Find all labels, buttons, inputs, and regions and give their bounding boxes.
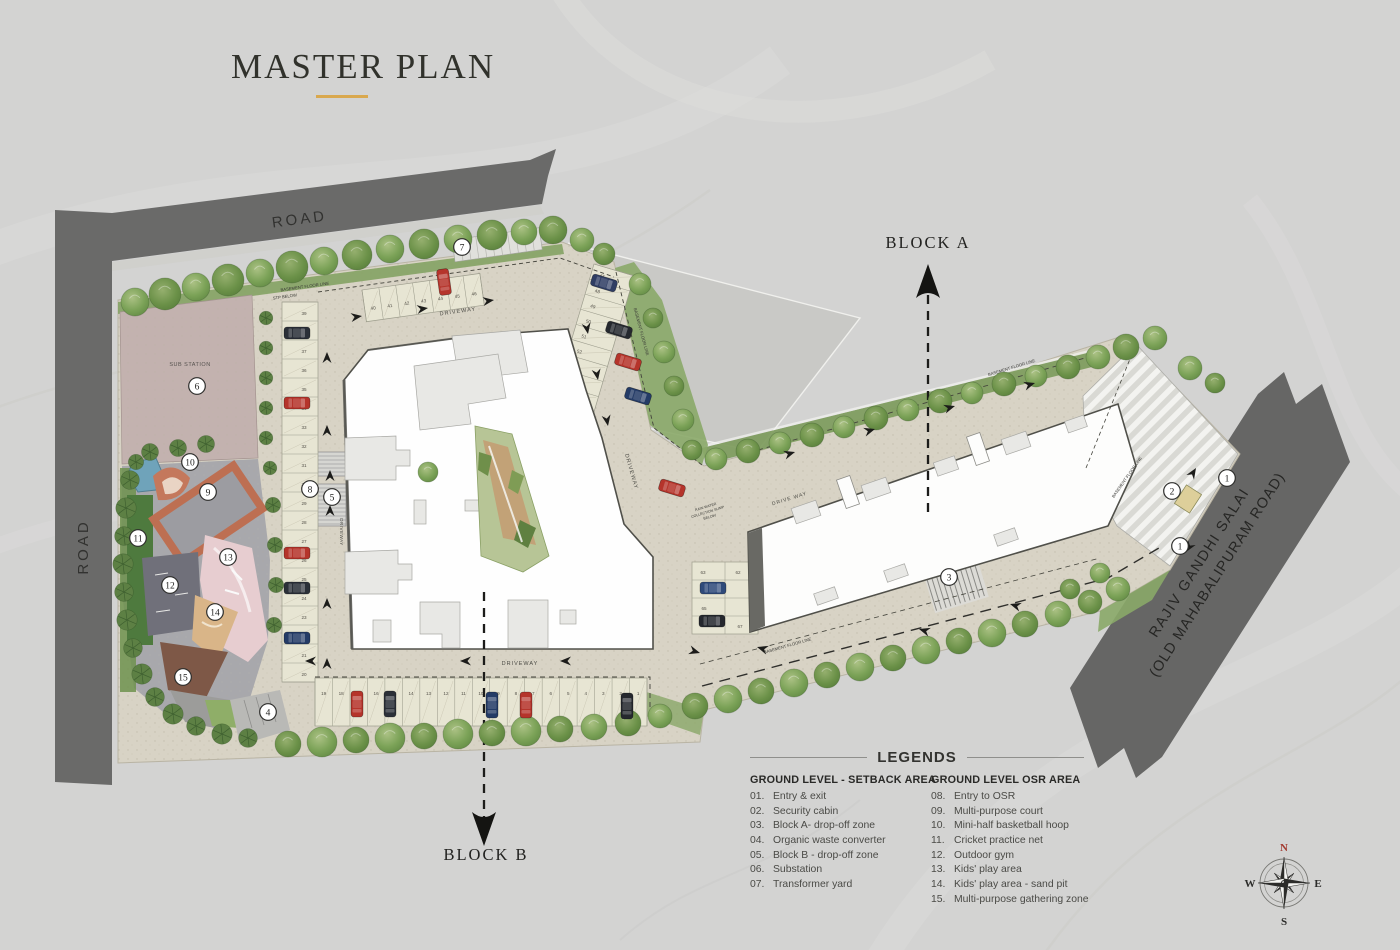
svg-text:1: 1 <box>637 691 640 696</box>
svg-text:23: 23 <box>301 615 307 620</box>
plan-marker-3: 3 <box>941 569 958 586</box>
site-plan: 3938373635343332313029282726252423222120… <box>0 0 1400 950</box>
car <box>284 547 310 559</box>
svg-text:36: 36 <box>301 368 307 373</box>
legend-column-header: GROUND LEVEL - SETBACK AREA <box>750 774 931 786</box>
plan-marker-13: 13 <box>220 549 237 566</box>
legend-item-number: 11. <box>931 836 954 847</box>
car <box>621 693 633 719</box>
legend-item-number: 02. <box>750 807 773 818</box>
svg-text:18: 18 <box>339 691 345 696</box>
legend-item-label: Entry & exit <box>773 792 931 803</box>
svg-text:39: 39 <box>301 311 307 316</box>
plan-marker-4: 4 <box>260 704 277 721</box>
legend-item-number: 10. <box>931 821 954 832</box>
car <box>384 691 396 717</box>
car <box>700 582 726 594</box>
svg-text:3: 3 <box>602 691 605 696</box>
svg-text:25: 25 <box>301 577 307 582</box>
legend-column: GROUND LEVEL - SETBACK AREA01.Entry & ex… <box>750 774 931 910</box>
svg-text:1: 1 <box>1178 542 1183 552</box>
legend-panel: LEGENDS GROUND LEVEL - SETBACK AREA01.En… <box>750 749 1084 910</box>
substation-label: SUB STATION <box>169 362 210 368</box>
svg-text:24: 24 <box>301 596 307 601</box>
svg-text:10: 10 <box>185 458 195 468</box>
svg-text:6: 6 <box>195 382 200 392</box>
outdoor-gym <box>142 552 202 636</box>
svg-text:31: 31 <box>301 463 307 468</box>
plan-marker-11: 11 <box>130 530 147 547</box>
compass-w: W <box>1245 878 1256 890</box>
legend-item-label: Multi-purpose gathering zone <box>954 895 1089 906</box>
car <box>699 615 725 627</box>
svg-text:5: 5 <box>330 493 335 503</box>
legend-item-label: Substation <box>773 865 931 876</box>
plan-marker-8: 8 <box>302 481 319 498</box>
legend-item-label: Entry to OSR <box>954 792 1084 803</box>
svg-text:33: 33 <box>301 425 307 430</box>
legend-item: 07.Transformer yard <box>750 880 931 891</box>
svg-text:19: 19 <box>321 691 327 696</box>
svg-text:14: 14 <box>408 691 414 696</box>
legend-item: 13.Kids' play area <box>931 865 1084 876</box>
page-title: MASTER PLAN <box>231 47 495 87</box>
title-accent-rule <box>316 95 368 98</box>
plan-marker-12: 12 <box>162 577 179 594</box>
svg-text:16: 16 <box>374 691 380 696</box>
svg-text:32: 32 <box>301 444 307 449</box>
block-b-label: BLOCK B <box>443 845 528 864</box>
legend-item-label: Mini-half basketball hoop <box>954 821 1084 832</box>
legend-item: 12.Outdoor gym <box>931 851 1084 862</box>
legend-heading-row: LEGENDS <box>750 749 1084 766</box>
legend-item-label: Transformer yard <box>773 880 931 891</box>
svg-text:11: 11 <box>133 534 142 544</box>
legend-item-number: 03. <box>750 821 773 832</box>
legend-column: GROUND LEVEL OSR AREA08.Entry to OSR09.M… <box>931 774 1084 910</box>
compass-star <box>1258 857 1310 909</box>
road-left <box>55 210 112 785</box>
svg-text:1: 1 <box>1225 474 1230 484</box>
plan-marker-14: 14 <box>207 604 224 621</box>
plan-marker-1: 1 <box>1219 470 1236 487</box>
svg-text:67: 67 <box>737 624 743 629</box>
svg-text:9: 9 <box>206 488 211 498</box>
car <box>520 692 532 718</box>
plan-marker-2: 2 <box>1164 483 1181 500</box>
legend-item-label: Security cabin <box>773 807 931 818</box>
svg-text:35: 35 <box>301 387 307 392</box>
legend-item: 04.Organic waste converter <box>750 836 931 847</box>
legend-item: 10.Mini-half basketball hoop <box>931 821 1084 832</box>
svg-text:13: 13 <box>426 691 432 696</box>
car <box>284 582 310 594</box>
legend-item-number: 06. <box>750 865 773 876</box>
svg-text:37: 37 <box>301 349 307 354</box>
legend-item-number: 07. <box>750 880 773 891</box>
svg-text:12: 12 <box>165 581 175 591</box>
car <box>284 397 310 409</box>
svg-text:11: 11 <box>461 691 466 696</box>
svg-text:62: 62 <box>735 570 741 575</box>
svg-text:65: 65 <box>701 606 707 611</box>
driveway-label-bottom: DRIVEWAY <box>502 661 539 667</box>
road-left-label: ROAD <box>75 519 92 574</box>
legend-item-label: Organic waste converter <box>773 836 931 847</box>
legend-item-label: Outdoor gym <box>954 851 1084 862</box>
svg-text:27: 27 <box>301 539 307 544</box>
plan-marker-1: 1 <box>1172 538 1189 555</box>
svg-text:6: 6 <box>550 691 553 696</box>
legend-column-header: GROUND LEVEL OSR AREA <box>931 774 1084 786</box>
legend-item: 05.Block B - drop-off zone <box>750 851 931 862</box>
compass-rose: N S W E <box>1238 826 1330 938</box>
legend-item-number: 01. <box>750 792 773 803</box>
legend-item: 06.Substation <box>750 865 931 876</box>
legend-item-label: Cricket practice net <box>954 836 1084 847</box>
legend-item: 03.Block A- drop-off zone <box>750 821 931 832</box>
legend-item: 11.Cricket practice net <box>931 836 1084 847</box>
plan-marker-7: 7 <box>454 239 471 256</box>
legend-columns: GROUND LEVEL - SETBACK AREA01.Entry & ex… <box>750 774 1084 910</box>
legend-item-number: 09. <box>931 807 954 818</box>
driveway-label-stairs: DRIVEWAY <box>339 518 344 546</box>
legend-item-number: 14. <box>931 880 954 891</box>
legend-item-number: 12. <box>931 851 954 862</box>
legend-item-number: 05. <box>750 851 773 862</box>
svg-text:7: 7 <box>532 691 535 696</box>
legend-item-label: Block A- drop-off zone <box>773 821 931 832</box>
svg-text:8: 8 <box>308 485 313 495</box>
car <box>284 632 310 644</box>
legend-item-label: Kids' play area <box>954 865 1084 876</box>
svg-text:29: 29 <box>301 501 307 506</box>
block-a-label: BLOCK A <box>885 233 970 252</box>
svg-text:2: 2 <box>1170 487 1175 497</box>
svg-text:21: 21 <box>301 653 307 658</box>
master-plan-page: 3938373635343332313029282726252423222120… <box>0 0 1400 950</box>
legend-item-label: Block B - drop-off zone <box>773 851 931 862</box>
svg-text:12: 12 <box>443 691 449 696</box>
legend-item: 15.Multi-purpose gathering zone <box>931 895 1084 906</box>
legend-item-label: Multi-purpose court <box>954 807 1084 818</box>
legend-item-number: 08. <box>931 792 954 803</box>
svg-text:20: 20 <box>301 672 307 677</box>
legend-item-number: 04. <box>750 836 773 847</box>
plan-marker-5: 5 <box>324 489 341 506</box>
svg-text:8: 8 <box>515 691 518 696</box>
legend-item-label: Kids' play area - sand pit <box>954 880 1084 891</box>
compass-n: N <box>1280 842 1288 854</box>
svg-text:28: 28 <box>301 520 307 525</box>
plan-marker-6: 6 <box>189 378 206 395</box>
plan-marker-15: 15 <box>175 669 192 686</box>
compass-s: S <box>1281 916 1287 928</box>
car <box>486 692 498 718</box>
legend-rule-left <box>750 757 867 758</box>
legend-item: 01.Entry & exit <box>750 792 931 803</box>
svg-text:13: 13 <box>223 553 233 563</box>
svg-text:7: 7 <box>460 243 465 253</box>
legend-item: 14.Kids' play area - sand pit <box>931 880 1084 891</box>
svg-text:63: 63 <box>700 570 706 575</box>
compass-e: E <box>1314 878 1321 890</box>
legend-item: 09.Multi-purpose court <box>931 807 1084 818</box>
svg-text:15: 15 <box>178 673 188 683</box>
legend-item-number: 15. <box>931 895 954 906</box>
legend-item: 02.Security cabin <box>750 807 931 818</box>
legend-item: 08.Entry to OSR <box>931 792 1084 803</box>
legend-rule-right <box>967 757 1084 758</box>
svg-text:5: 5 <box>567 691 570 696</box>
legend-heading: LEGENDS <box>877 749 957 766</box>
legend-item-number: 13. <box>931 865 954 876</box>
svg-text:4: 4 <box>584 691 587 696</box>
substation-area <box>120 295 258 464</box>
svg-text:4: 4 <box>266 708 271 718</box>
svg-text:14: 14 <box>210 608 220 618</box>
plan-marker-9: 9 <box>200 484 217 501</box>
car <box>284 327 310 339</box>
plan-marker-10: 10 <box>182 454 199 471</box>
car <box>351 691 363 717</box>
svg-text:3: 3 <box>947 573 952 583</box>
